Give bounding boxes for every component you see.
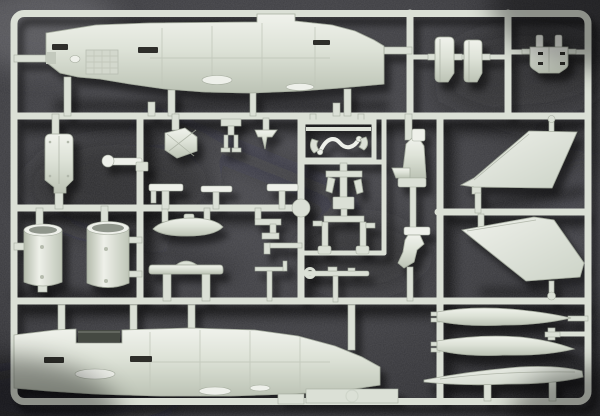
fuselage-slot	[52, 44, 68, 50]
sprue-tab-small	[278, 394, 304, 404]
gate-stub	[333, 103, 340, 116]
fairing-bump	[70, 56, 80, 63]
airbrake-grille	[86, 50, 118, 74]
gate-stub	[14, 55, 48, 62]
gate-stub	[148, 102, 155, 116]
cylinder-rim-opening	[29, 226, 57, 234]
seat-base	[398, 178, 426, 187]
tail-notch	[46, 52, 56, 64]
fairing-bump	[286, 84, 314, 91]
sprue-tab-plate	[306, 389, 398, 403]
injection-node	[292, 199, 310, 217]
photo-stage	[0, 0, 600, 416]
gate-stub	[384, 47, 412, 54]
seat-headrest	[412, 129, 425, 141]
fairing-bump	[202, 76, 232, 85]
sprue-photo	[0, 0, 600, 416]
fuselage-slot	[138, 47, 158, 53]
fuselage-slot	[313, 40, 330, 45]
